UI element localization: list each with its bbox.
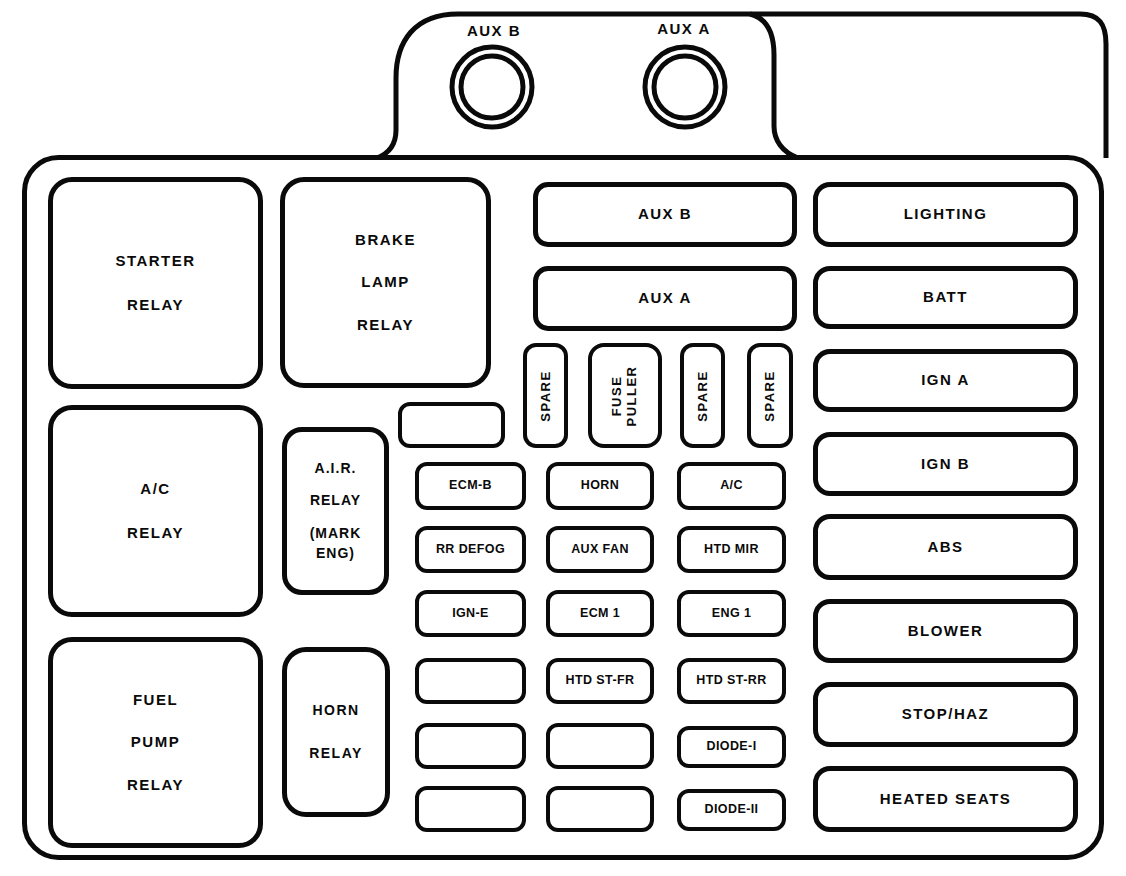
fuse-ecm-1: ECM 1	[546, 590, 654, 637]
fuse-eng-1: ENG 1	[677, 590, 786, 637]
empty-fuse-slot	[415, 723, 526, 769]
relay-label-line: (MARK	[310, 526, 362, 541]
relay-label-line: ENG)	[316, 546, 355, 561]
fuse-ecm-b: ECM-B	[415, 462, 526, 510]
aux-b-socket-label: AUX B	[467, 22, 521, 39]
fuse-diode-2: DIODE-II	[677, 789, 786, 831]
fuse-stop-haz: STOP/HAZ	[813, 682, 1078, 747]
relay-label-line: RELAY	[127, 297, 184, 314]
fuse-puller-slot: FUSE PULLER	[588, 343, 662, 448]
spare-slot-2: SPARE	[680, 343, 725, 448]
fuse-ign-b: IGN B	[813, 432, 1078, 496]
brake-lamp-relay: BRAKE LAMP RELAY	[280, 177, 491, 388]
fuse-puller-label: FUSE PULLER	[592, 347, 658, 444]
relay-label-line: RELAY	[310, 493, 361, 508]
fuse-rr-defog: RR DEFOG	[415, 526, 526, 573]
relay-label-line: HORN	[312, 703, 359, 718]
fuse-ign-e: IGN-E	[415, 590, 526, 637]
starter-relay: STARTER RELAY	[48, 177, 263, 389]
fuel-pump-relay: FUEL PUMP RELAY	[48, 637, 263, 848]
relay-label-line: RELAY	[357, 317, 414, 334]
fuse-lighting: LIGHTING	[813, 182, 1078, 247]
fuse-puller-label-line: PULLER	[625, 365, 640, 426]
relay-label-line: LAMP	[361, 274, 410, 291]
aux-b-socket-inner-ring	[461, 56, 523, 118]
relay-label-line: RELAY	[127, 777, 184, 794]
fuse-puller-label-line: FUSE	[610, 375, 625, 416]
maxi-fuse-aux-a: AUX A	[533, 266, 797, 331]
empty-fuse-slot	[546, 786, 654, 832]
horn-relay: HORN RELAY	[282, 647, 390, 817]
fuse-ac: A/C	[677, 462, 786, 510]
fuse-abs: ABS	[813, 514, 1078, 580]
fuse-heated-seats: HEATED SEATS	[813, 766, 1078, 832]
fuse-ign-a: IGN A	[813, 349, 1078, 412]
fuse-diode-1: DIODE-I	[677, 726, 786, 768]
empty-fuse-slot	[415, 658, 526, 704]
aux-a-socket-inner-ring	[654, 56, 716, 118]
spare-slot-label: SPARE	[752, 347, 789, 444]
fuse-box-diagram: AUX B AUX A STARTER RELAY A/C RELAY FUEL…	[0, 0, 1126, 876]
relay-label-line: STARTER	[115, 253, 195, 270]
fuse-batt: BATT	[813, 266, 1078, 329]
maxi-fuse-aux-b: AUX B	[533, 182, 797, 247]
fuse-blower: BLOWER	[813, 599, 1078, 663]
relay-label-line: BRAKE	[355, 232, 416, 249]
empty-fuse-slot	[546, 723, 654, 769]
fuse-horn: HORN	[546, 462, 654, 510]
relay-label-line: A/C	[140, 481, 170, 498]
fuse-htd-st-fr: HTD ST-FR	[546, 658, 654, 704]
air-relay: A.I.R. RELAY (MARK ENG)	[282, 427, 389, 595]
empty-fuse-slot	[398, 402, 505, 448]
ac-relay: A/C RELAY	[48, 405, 263, 617]
aux-a-socket-label: AUX A	[657, 20, 711, 37]
relay-label-line: FUEL	[133, 692, 178, 709]
relay-label-line: A.I.R.	[315, 461, 357, 476]
relay-label-line: RELAY	[309, 746, 363, 761]
fuse-htd-mir: HTD MIR	[677, 526, 786, 573]
fuse-aux-fan: AUX FAN	[546, 526, 654, 573]
spare-slot-label: SPARE	[684, 347, 721, 444]
spare-slot-3: SPARE	[747, 343, 793, 448]
spare-slot-1: SPARE	[523, 343, 568, 448]
spare-slot-label: SPARE	[527, 347, 564, 444]
relay-label-line: RELAY	[127, 525, 184, 542]
fuse-htd-st-rr: HTD ST-RR	[677, 658, 786, 704]
empty-fuse-slot	[415, 786, 526, 832]
relay-label-line: PUMP	[131, 734, 180, 751]
